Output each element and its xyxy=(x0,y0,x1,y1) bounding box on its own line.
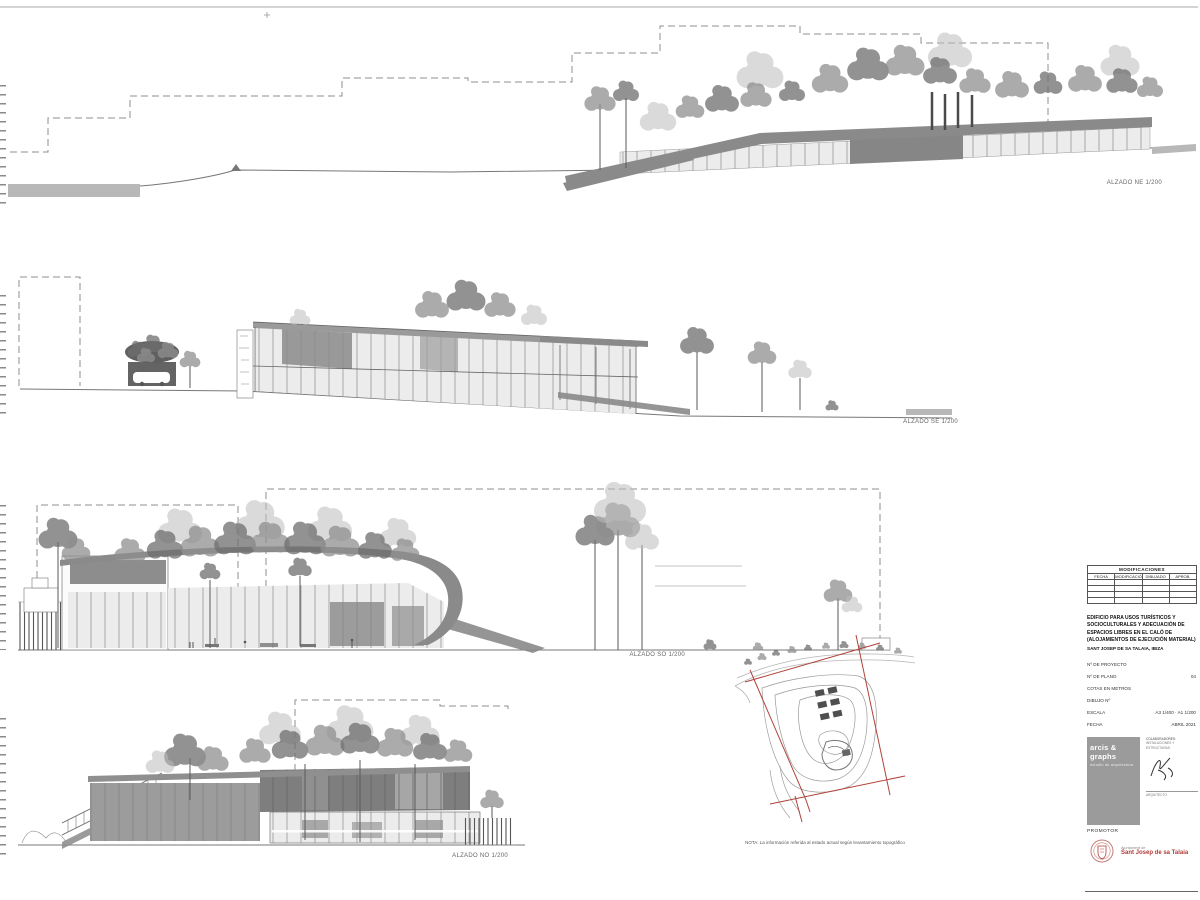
elevation-se-label: ALZADO SE 1/200 xyxy=(848,419,958,425)
site-boundary-red xyxy=(745,635,905,822)
field-value: ABRIL 2021 xyxy=(1171,719,1196,731)
elevation-so-drawing xyxy=(18,482,890,653)
field-label: COTAS EN METROS xyxy=(1087,683,1131,695)
architect-logo-tagline: estudio de arquitectura xyxy=(1090,763,1137,767)
signature-note: arquitecto xyxy=(1146,791,1198,797)
roof-trees-ne xyxy=(584,32,1163,130)
elevation-so-label: ALZADO SO 1/200 xyxy=(575,652,685,658)
level-ticks-ne xyxy=(0,85,6,205)
elevation-ne-label: ALZADO NE 1/200 xyxy=(1052,180,1162,186)
promoter-label: PROMOTOR xyxy=(1087,829,1198,834)
site-plan-drawing xyxy=(735,635,915,822)
field-value: A3 1/400 · A1 1/200 xyxy=(1155,707,1196,719)
field-row: Nº DE PLANO 04 xyxy=(1087,671,1196,683)
signature xyxy=(1146,750,1182,784)
project-location: SANT JOSEP DE SA TALAIA, IBIZA xyxy=(1087,646,1196,651)
title-block-fields: Nº DE PROYECTO Nº DE PLANO 04 COTAS EN M… xyxy=(1087,659,1196,731)
architect-logo-name: arcis & graphs xyxy=(1090,743,1137,761)
field-label: FECHA xyxy=(1087,719,1103,731)
field-label: Nº DE PROYECTO xyxy=(1087,659,1127,671)
level-ticks-se xyxy=(0,295,6,420)
field-label: ESCALA xyxy=(1087,707,1105,719)
elevation-no-drawing xyxy=(18,700,525,849)
project-title: EDIFICIO PARA USOS TURÍSTICOS Y SOCIOCUL… xyxy=(1087,615,1196,644)
sheet-drawing xyxy=(0,0,1200,900)
drawing-sheet: ALZADO NE 1/200 ALZADO SE 1/200 ALZADO S… xyxy=(0,0,1200,900)
field-row: ESCALA A3 1/400 · A1 1/200 xyxy=(1087,707,1196,719)
level-ticks-no xyxy=(0,718,6,860)
collaborators-note: instalaciones y estructuras xyxy=(1146,741,1198,750)
title-block: MODIFICACIONES FECHA MODIFICACIÓN DIBUJA… xyxy=(1085,561,1198,892)
level-ticks-so xyxy=(0,505,6,650)
field-label: DIBUJO Nº xyxy=(1087,695,1110,707)
municipal-seal-icon xyxy=(1087,836,1117,866)
elevation-ne-drawing xyxy=(8,12,1196,197)
elevation-no-label: ALZADO NO 1/200 xyxy=(398,853,508,859)
field-label: Nº DE PLANO xyxy=(1087,671,1117,683)
elevation-se-drawing xyxy=(19,277,952,418)
promoter-name-line2: Sant Josep de sa Talaia xyxy=(1121,850,1188,856)
site-plan-note: NOTA: La información referida al estado … xyxy=(735,840,915,845)
field-row: Nº DE PROYECTO xyxy=(1087,659,1196,671)
field-row: FECHA ABRIL 2021 xyxy=(1087,719,1196,731)
architect-logo: arcis & graphs estudio de arquitectura xyxy=(1087,737,1140,825)
promoter-block: PROMOTOR Ajuntament de Sant Josep de sa … xyxy=(1087,829,1198,866)
revision-col-header: DIBUJADO xyxy=(1142,574,1169,580)
revision-row xyxy=(1088,598,1197,604)
revision-col-header: MODIFICACIÓN xyxy=(1115,574,1142,580)
field-value: 04 xyxy=(1191,671,1196,683)
revisions-title: MODIFICACIONES xyxy=(1088,566,1197,574)
field-row: COTAS EN METROS xyxy=(1087,683,1196,695)
field-row: DIBUJO Nº xyxy=(1087,695,1196,707)
revisions-table: MODIFICACIONES FECHA MODIFICACIÓN DIBUJA… xyxy=(1087,565,1197,604)
